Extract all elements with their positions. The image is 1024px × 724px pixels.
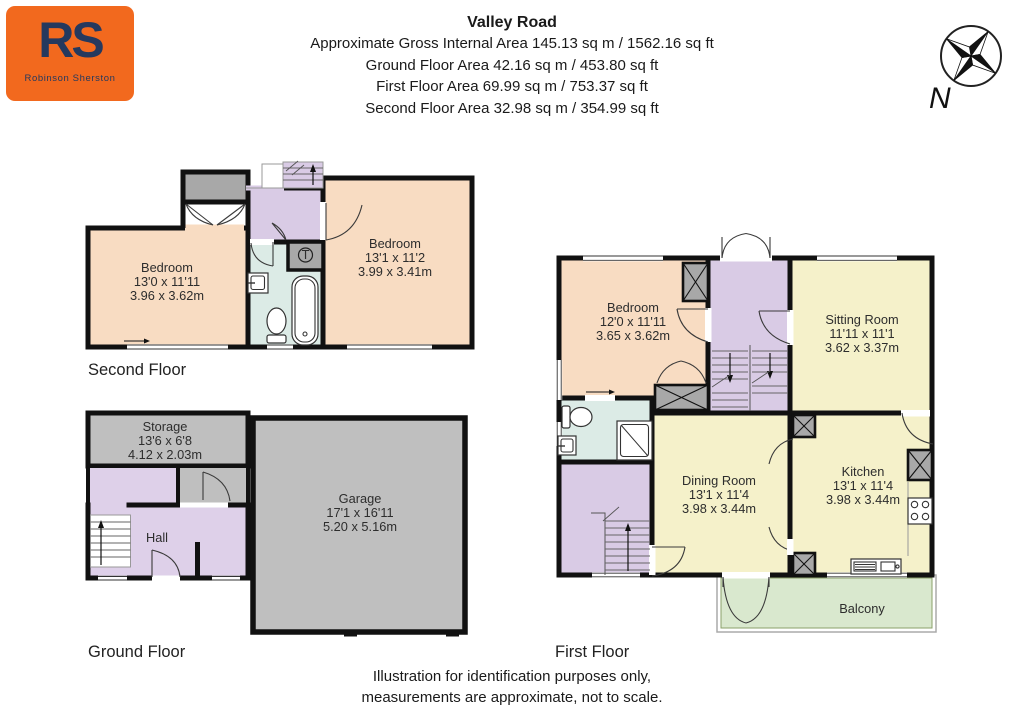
agency-logo: RS Robinson Sherston xyxy=(6,6,134,101)
bath-icon xyxy=(292,276,318,345)
garage-door-post xyxy=(446,630,459,637)
wall-opening xyxy=(585,395,615,401)
wall-opening xyxy=(91,503,127,508)
room-name: Bedroom xyxy=(369,236,421,251)
room-name: Balcony xyxy=(839,601,885,616)
room-dims-metric: 3.62 x 3.37m xyxy=(825,340,899,355)
wall-opening xyxy=(901,410,930,417)
window xyxy=(267,344,293,350)
tank-label: T xyxy=(302,247,310,262)
entrance-doors xyxy=(720,234,772,262)
wall xyxy=(195,542,200,578)
room-name: Sitting Room xyxy=(825,312,898,327)
disclaimer-line: measurements are approximate, not to sca… xyxy=(0,687,1024,708)
room-dims-imperial: 17'1 x 16'11 xyxy=(326,505,393,520)
wall-opening xyxy=(787,539,794,555)
room-dims-metric: 3.96 x 3.62m xyxy=(130,288,204,303)
room-dims-metric: 5.20 x 5.16m xyxy=(323,519,397,534)
compass-icon: N xyxy=(925,10,1017,118)
wardrobe-icon xyxy=(683,263,708,301)
shower-icon xyxy=(617,421,652,460)
room-dims-imperial: 13'6 x 6'8 xyxy=(138,433,192,448)
window xyxy=(583,255,663,261)
wall-opening xyxy=(320,202,326,240)
toilet-icon xyxy=(267,308,286,343)
room-landing xyxy=(708,258,790,413)
room-dims-metric: 3.99 x 3.41m xyxy=(358,264,432,279)
plan-header: Valley Road Approximate Gross Internal A… xyxy=(0,12,1024,119)
disclaimer-line: Illustration for identification purposes… xyxy=(0,666,1024,687)
room-dims-metric: 3.98 x 3.44m xyxy=(826,492,900,507)
kitchen-sink-icon xyxy=(851,559,901,574)
floorplan-page: Valley Road Approximate Gross Internal A… xyxy=(0,0,1024,724)
sink-icon xyxy=(248,273,268,293)
wall xyxy=(246,202,251,217)
logo-monogram: RS xyxy=(6,10,134,70)
first-floor-plan: Bedroom 12'0 x 11'11 3.65 x 3.62m Sittin… xyxy=(545,225,945,645)
first-floor-label: First Floor xyxy=(555,643,629,662)
door-leaf xyxy=(186,204,213,225)
window xyxy=(592,572,640,577)
room-balcony xyxy=(717,575,936,632)
room-name: Hall xyxy=(146,530,168,545)
window xyxy=(347,344,432,350)
room-closet xyxy=(183,172,248,202)
area-line-first: First Floor Area 69.99 sq m / 753.37 sq … xyxy=(0,76,1024,98)
room-name: Garage xyxy=(339,491,382,506)
wall-opening xyxy=(250,239,274,245)
room-dims-metric: 3.65 x 3.62m xyxy=(596,328,670,343)
room-dims-imperial: 11'11 x 11'1 xyxy=(829,326,894,341)
room-dims-metric: 4.12 x 2.03m xyxy=(128,447,202,462)
wall-opening xyxy=(705,308,712,342)
room-name: Storage xyxy=(143,419,188,434)
logo-name: Robinson Sherston xyxy=(6,73,134,84)
toilet-icon xyxy=(562,406,592,428)
room-dims-imperial: 12'0 x 11'11 xyxy=(600,314,666,329)
room-name: Kitchen xyxy=(842,464,885,479)
room-landing xyxy=(248,188,323,242)
room-name: Bedroom xyxy=(607,300,659,315)
room-dims-metric: 3.98 x 3.44m xyxy=(682,501,756,516)
sink-icon xyxy=(558,436,576,455)
page-title: Valley Road xyxy=(0,12,1024,33)
second-floor-label: Second Floor xyxy=(88,361,186,380)
wardrobe-icon xyxy=(908,450,932,480)
ground-floor-label: Ground Floor xyxy=(88,643,185,662)
area-line-ground: Ground Floor Area 42.16 sq m / 453.80 sq… xyxy=(0,55,1024,77)
stove-icon xyxy=(908,498,932,524)
room-hall-upper xyxy=(88,466,178,505)
second-floor-plan: T xyxy=(80,150,480,360)
compass-north-label: N xyxy=(929,82,951,115)
ground-floor-plan: Storage 13'6 x 6'8 4.12 x 2.03m Hall Gar… xyxy=(80,405,480,640)
wall-opening xyxy=(649,545,656,575)
room-dims-imperial: 13'1 x 11'2 xyxy=(365,250,425,265)
stair-notch xyxy=(262,164,283,188)
stairs-icon xyxy=(91,515,131,567)
wall xyxy=(181,202,186,228)
wall-opening xyxy=(787,310,794,345)
garage-door-post xyxy=(344,630,357,637)
area-line-second: Second Floor Area 32.98 sq m / 354.99 sq… xyxy=(0,98,1024,120)
room-name: Bedroom xyxy=(141,260,193,275)
window xyxy=(212,576,240,581)
door-leaf xyxy=(217,204,245,225)
room-vestibule xyxy=(178,466,248,505)
area-line-total: Approximate Gross Internal Area 145.13 s… xyxy=(0,33,1024,55)
room-dims-imperial: 13'0 x 11'11 xyxy=(134,274,200,289)
wall-opening xyxy=(180,503,228,508)
room-dims-imperial: 13'1 x 11'4 xyxy=(833,478,893,493)
room-name: Dining Room xyxy=(682,473,756,488)
room-dims-imperial: 13'1 x 11'4 xyxy=(689,487,749,502)
wall-opening xyxy=(152,576,180,582)
window xyxy=(98,576,127,581)
window xyxy=(817,255,897,261)
window xyxy=(127,344,228,350)
window xyxy=(556,360,562,400)
wall-opening xyxy=(185,225,244,231)
disclaimer: Illustration for identification purposes… xyxy=(0,666,1024,708)
